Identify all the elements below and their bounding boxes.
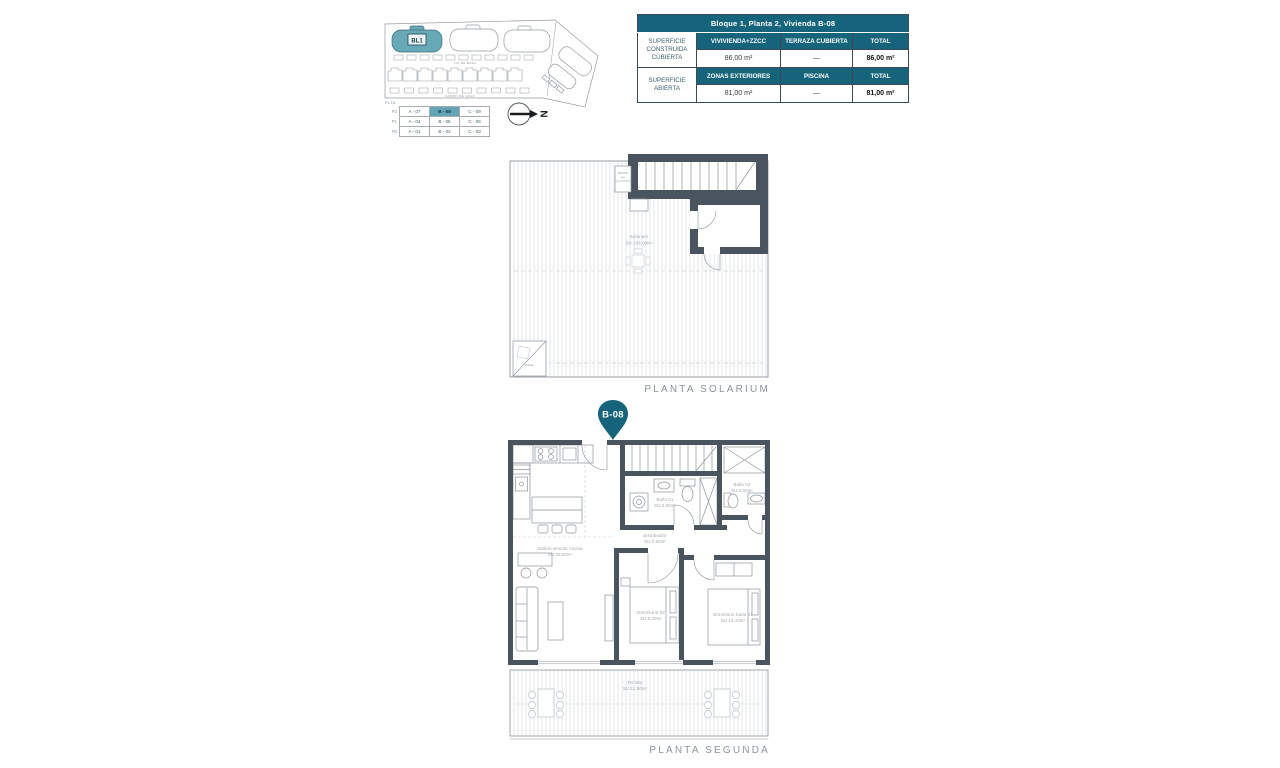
legend-cell: C - 06 xyxy=(460,117,490,127)
value-terraza-cubierta: — xyxy=(781,50,853,68)
street-bottom-label: CAMPO DE GOLF xyxy=(445,94,475,98)
label-terraza-name: Terraza xyxy=(627,680,643,685)
row-label-superficie-cubierta: SUPERFICIE CONSTRUIDA CUBIERTA xyxy=(638,33,697,68)
legend-cell: B - 02 xyxy=(430,127,460,137)
pin-label: B-08 xyxy=(602,410,624,421)
row-label-superficie-abierta: SUPERFICIE ABIERTA xyxy=(638,68,697,103)
kitchen xyxy=(513,445,593,533)
legend-header: PLTA. xyxy=(385,100,494,105)
legend-level-p2: P2 xyxy=(384,107,400,117)
label-distribuidor-area: SU:2,80m² xyxy=(644,539,666,544)
col-header-total-1: TOTAL xyxy=(853,33,909,50)
label-distribuidor-name: Distribuidor xyxy=(643,533,667,538)
site-houses-bottom xyxy=(388,68,522,81)
plan-sheet: BL1 VIA DE BAZA xyxy=(0,0,1280,768)
legend-cell: B - 05 xyxy=(430,117,460,127)
col-header-total-2: TOTAL xyxy=(853,68,909,85)
caption-planta-solarium: PLANTA SOLARIUM xyxy=(508,384,770,395)
value-zonas-exteriores: 81,00 m² xyxy=(697,85,781,103)
summary-table: Bloque 1, Planta 2, Vivienda B-08 SUPERF… xyxy=(637,14,909,103)
label-bano2-name: Baño 02 xyxy=(733,482,750,487)
value-total-cubierta: 86,00 m² xyxy=(853,50,909,68)
summary-title: Bloque 1, Planta 2, Vivienda B-08 xyxy=(638,15,909,33)
col-header-piscina: PISCINA xyxy=(781,68,853,85)
label-dorm2-area: SU:9,20m² xyxy=(640,616,662,621)
site-plan: BL1 VIA DE BAZA xyxy=(380,16,600,108)
second-floor-plan: Salón/comedor cocina SU:30,00m² Distribu… xyxy=(508,437,770,741)
col-header-terraza-cubierta: TERRAZA CUBIERTA xyxy=(781,33,853,50)
north-arrow: N xyxy=(502,100,552,134)
solarium-room-area: SU:103,00m² xyxy=(626,241,653,246)
solarium-plan: BAJTE PV Ducha Solarium SU:103,00m² xyxy=(508,153,770,381)
shaft-label-2: PV xyxy=(621,176,625,180)
legend-row-p0: P0 A - 01 B - 02 C - 03 xyxy=(384,127,490,137)
bl1-label: BL1 xyxy=(411,39,423,45)
col-header-vivienda: VIVIVIENDA+ZZCC xyxy=(697,33,781,50)
legend-level-p1: P1 xyxy=(384,117,400,127)
street-top-label: VIA DE BAZA xyxy=(454,61,477,65)
value-piscina: — xyxy=(781,85,853,103)
bathroom-02-fixtures xyxy=(724,447,765,508)
legend-row-p2: P2 A - 07 B - 08 C - 09 xyxy=(384,107,490,117)
caption-planta-segunda: PLANTA SEGUNDA xyxy=(508,745,770,756)
legend-table: P2 A - 07 B - 08 C - 09 P1 A - 04 B - 05… xyxy=(384,106,490,137)
label-bano1-name: Baño 01 xyxy=(656,497,673,502)
label-bano1-area: SU:3,80m² xyxy=(654,503,676,508)
label-bano2-area: SU:3,50m² xyxy=(731,488,753,493)
label-salon-area: SU:30,00m² xyxy=(548,552,573,557)
label-terraza-area: SU:21,00m² xyxy=(623,686,648,691)
shower-label: Ducha xyxy=(525,363,534,367)
legend-cell-highlight-b08: B - 08 xyxy=(430,107,460,117)
legend-level-p0: P0 xyxy=(384,127,400,137)
interior-stairs xyxy=(632,445,716,471)
legend-cell: C - 09 xyxy=(460,107,490,117)
unit-pin: B-08 xyxy=(592,398,634,442)
plant-legend: PLTA. P2 A - 07 B - 08 C - 09 P1 A - 04 … xyxy=(384,100,494,137)
label-dorm2-name: Dormitorio 02 xyxy=(637,610,665,615)
shaft-label-1: BAJTE xyxy=(618,171,627,175)
solarium-landing-room xyxy=(698,205,760,247)
label-suite-name: Dormitorio Suite 01 xyxy=(713,612,753,617)
label-salon-name: Salón/comedor cocina xyxy=(537,546,583,551)
label-suite-area: SU:13,10m² xyxy=(721,618,746,623)
north-arrowhead xyxy=(530,110,538,118)
legend-row-p1: P1 A - 04 B - 05 C - 06 xyxy=(384,117,490,127)
solarium-shower: Ducha xyxy=(513,341,546,376)
legend-cell: C - 03 xyxy=(460,127,490,137)
legend-cell: A - 07 xyxy=(400,107,430,117)
bed-suite xyxy=(708,563,760,645)
col-header-zonas-exteriores: ZONAS EXTERIORES xyxy=(697,68,781,85)
legend-cell: A - 01 xyxy=(400,127,430,137)
legend-cell: A - 04 xyxy=(400,117,430,127)
solarium-room-name: Solarium xyxy=(630,234,648,239)
living-furniture xyxy=(516,553,613,651)
parking-row-top xyxy=(394,55,533,60)
north-letter: N xyxy=(538,110,549,117)
value-total-abierta: 81,00 m² xyxy=(853,85,909,103)
shaft-box: BAJTE PV xyxy=(615,166,631,192)
value-vivienda: 86,00 m² xyxy=(697,50,781,68)
